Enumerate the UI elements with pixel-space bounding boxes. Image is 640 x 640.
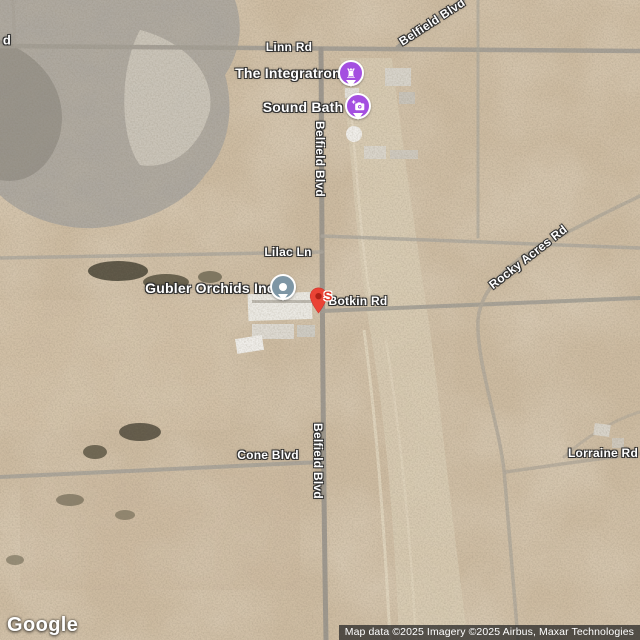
google-logo[interactable]: Google (7, 614, 78, 637)
satellite-imagery (0, 0, 640, 640)
red-map-pin[interactable] (309, 287, 328, 314)
poi-pin-sound-bath[interactable] (345, 93, 371, 119)
map-canvas[interactable]: d Linn Rd Belfield Blvd Belfield Blvd Li… (0, 0, 640, 640)
poi-pin-the-integratron[interactable]: ♜ (338, 60, 364, 86)
camera-plus-icon (351, 99, 365, 113)
map-attribution[interactable]: Map data ©2025 Imagery ©2025 Airbus, Max… (339, 625, 640, 640)
default-place-dot-icon (279, 283, 287, 291)
poi-pin-gubler-orchids[interactable] (270, 274, 296, 300)
castle-rook-icon: ♜ (345, 67, 357, 80)
